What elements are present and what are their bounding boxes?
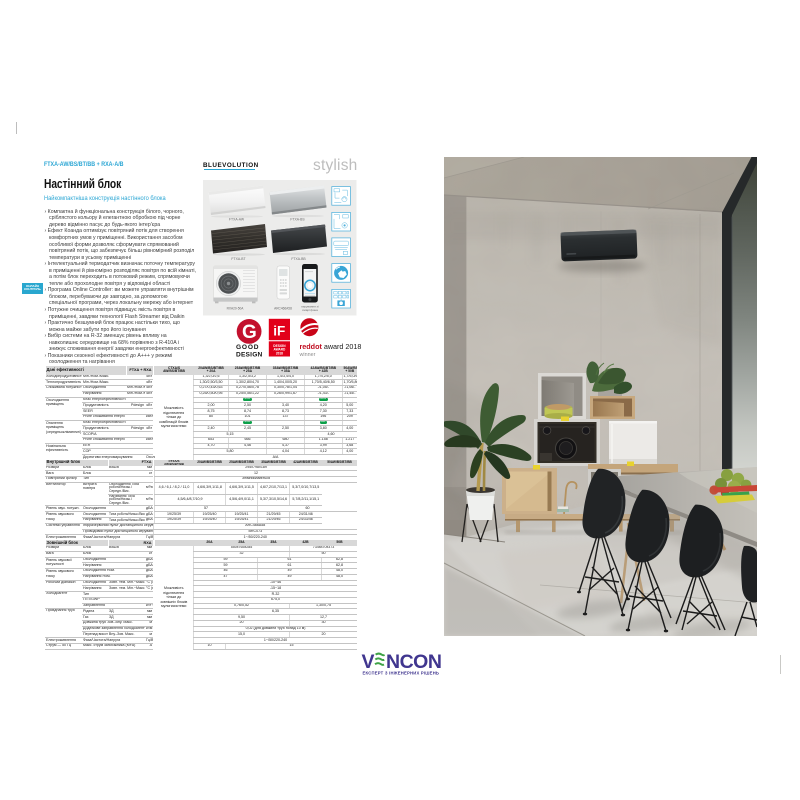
svg-text:ЕКСПЕРТ З ІНЖЕНЕРНИХ РІШЕНЬ: ЕКСПЕРТ З ІНЖЕНЕРНИХ РІШЕНЬ [363,670,440,675]
svg-text:смартфона: смартфона [302,308,318,312]
svg-text:GOOD: GOOD [236,344,259,351]
svg-text:G: G [242,322,257,343]
svg-text:FTXA-BS: FTXA-BS [290,218,305,222]
svg-text:ARC466A58: ARC466A58 [274,307,292,311]
svg-text:winner: winner [299,352,316,358]
svg-text:FTXA-AW: FTXA-AW [229,218,245,222]
svg-text:FTXA-BT: FTXA-BT [231,257,245,261]
svg-text:iF: iF [273,324,285,339]
svg-text:reddot award 2018: reddot award 2018 [300,342,362,351]
svg-text:DESIGN: DESIGN [236,352,263,359]
svg-text:RXA20-50A: RXA20-50A [227,307,245,311]
svg-text:2018: 2018 [276,351,283,355]
svg-text:FTXA-BB: FTXA-BB [291,257,306,261]
